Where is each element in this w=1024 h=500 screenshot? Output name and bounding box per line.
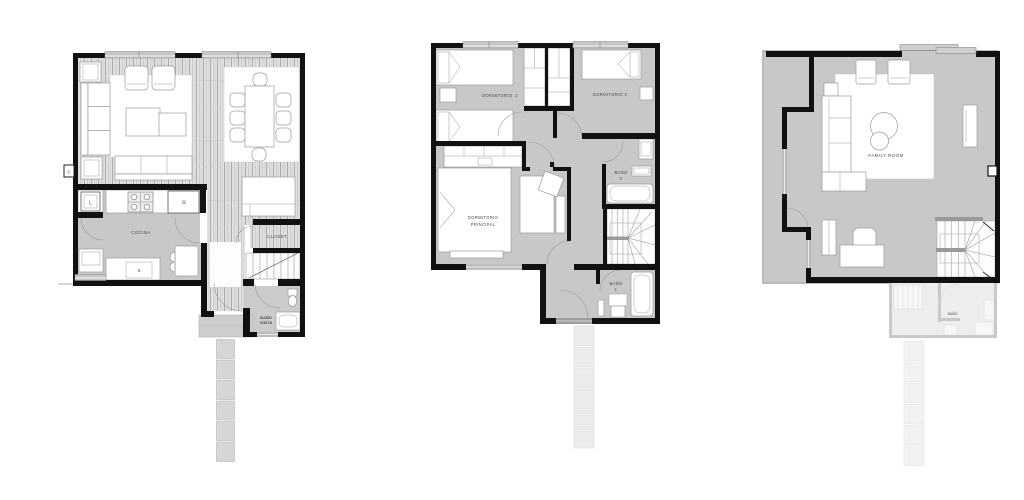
svg-text:R: R — [182, 201, 186, 207]
svg-text:BAÑO: BAÑO — [614, 170, 628, 175]
svg-text:DORMITORIO 2: DORMITORIO 2 — [482, 93, 518, 98]
svg-text:PRINCIPAL: PRINCIPAL — [471, 222, 496, 227]
svg-text:COCINA: COCINA — [131, 230, 150, 235]
svg-text:C: C — [67, 170, 70, 175]
svg-text:1: 1 — [615, 287, 618, 292]
svg-text:VISITA: VISITA — [260, 320, 273, 325]
svg-text:DORMITORIO 3: DORMITORIO 3 — [593, 92, 628, 97]
svg-text:L: L — [89, 201, 92, 207]
svg-text:DORMITORIO: DORMITORIO — [468, 215, 499, 220]
svg-text:S: S — [137, 268, 140, 273]
svg-text:CLOSET: CLOSET — [267, 234, 287, 239]
svg-text:BAÑO: BAÑO — [948, 311, 958, 316]
svg-text:2: 2 — [620, 176, 623, 181]
svg-text:BAÑO: BAÑO — [609, 281, 623, 286]
svg-text:FAMILY ROOM: FAMILY ROOM — [868, 153, 903, 158]
